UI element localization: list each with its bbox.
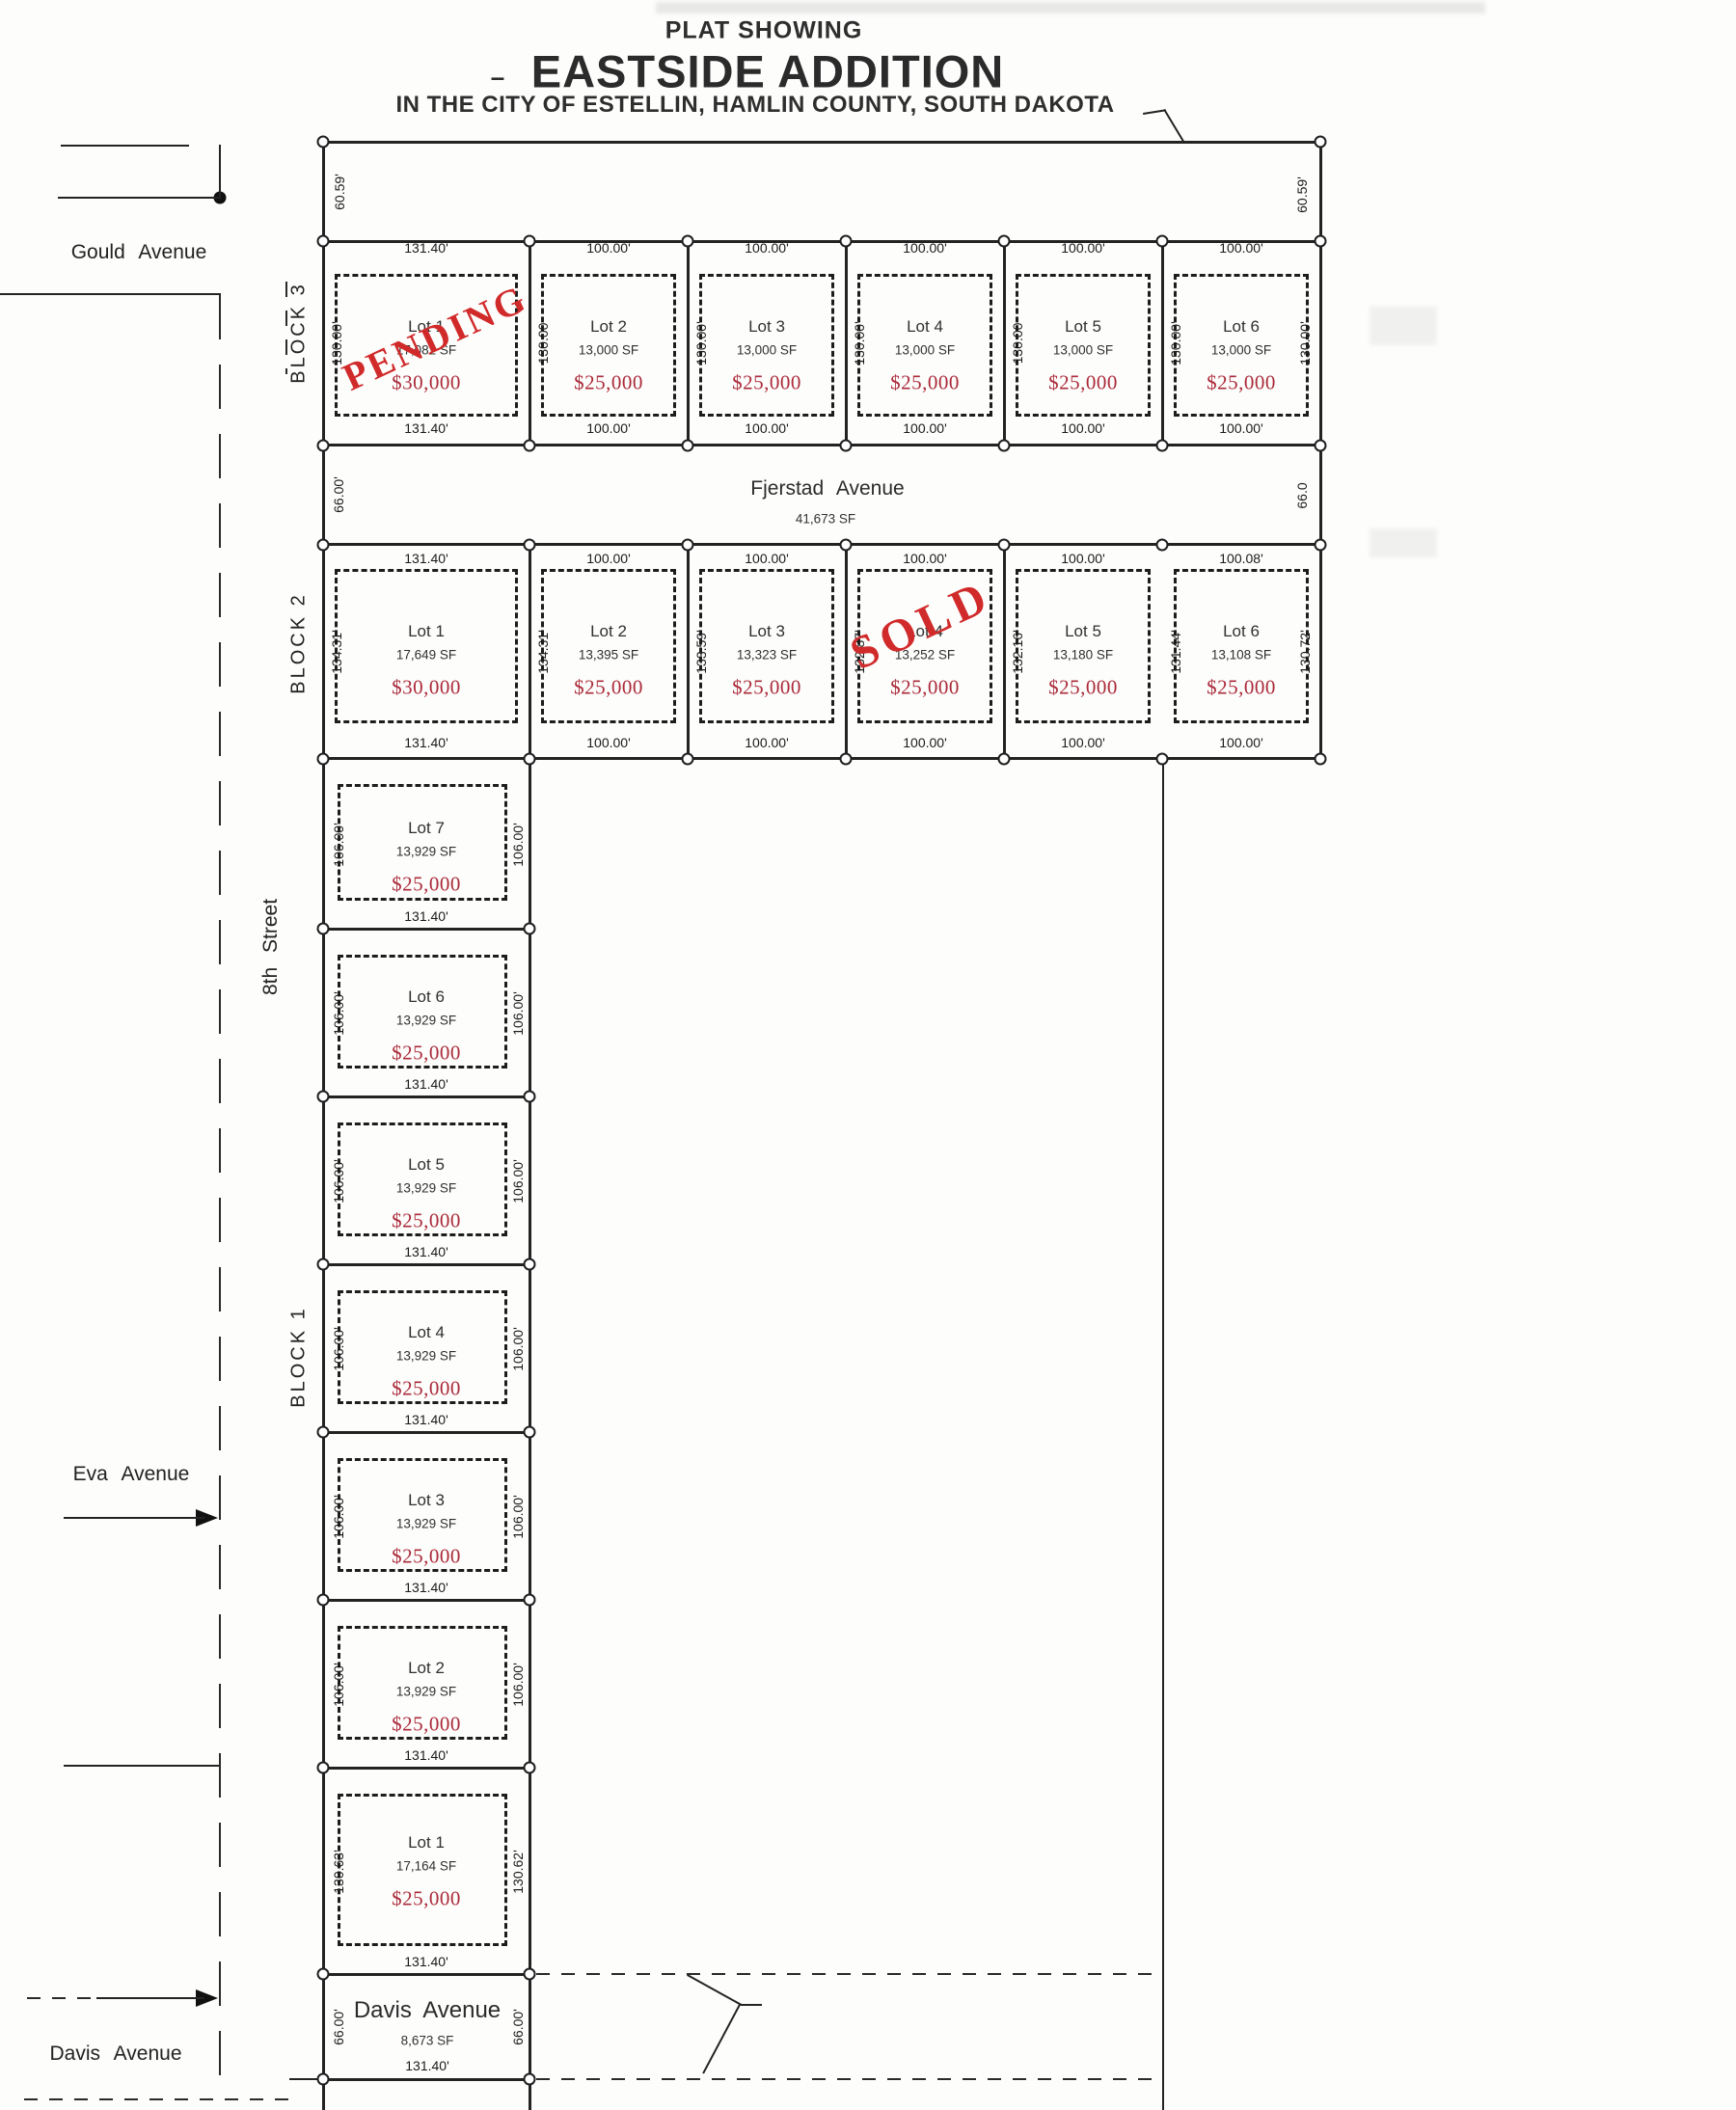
dimension-label: 106.00'	[510, 1327, 526, 1371]
dimension-label: 106.00'	[510, 1495, 526, 1539]
scan-artifact	[656, 2, 1485, 14]
dimension-label: 100.00'	[903, 735, 947, 750]
davis-avenue-block-label: Davis Avenue	[354, 1997, 501, 2024]
page-title: EASTSIDE ADDITION	[531, 45, 1005, 98]
boundary-line	[323, 1973, 532, 1976]
plat-kicker: PLAT SHOWING	[665, 17, 863, 45]
corner-node	[998, 753, 1011, 766]
corner-node	[317, 1594, 330, 1607]
boundary-line	[687, 543, 690, 760]
dimension-label: 100.00'	[1061, 240, 1105, 256]
lot-name: Lot 5	[1065, 622, 1101, 641]
dimension-label: 131.40'	[404, 1580, 448, 1595]
corner-node	[317, 539, 330, 552]
page-subtitle: IN THE CITY OF ESTELLIN, HAMLIN COUNTY, …	[395, 92, 1114, 119]
boundary-line	[323, 444, 1323, 446]
street-label-gould: Gould Avenue	[71, 241, 207, 264]
lot-area: 13,929 SF	[396, 844, 456, 858]
corner-node	[524, 753, 536, 766]
corner-node	[1156, 539, 1169, 552]
lot-price: $25,000	[1048, 676, 1118, 700]
dashed-road-line	[536, 2078, 1163, 2080]
dashed-road-line	[27, 1997, 96, 1999]
dimension-label: 130.00'	[693, 321, 709, 365]
lot-setback-line	[699, 569, 834, 723]
dimension-label: 106.00'	[331, 991, 346, 1036]
corner-node	[682, 235, 694, 248]
boundary-line	[64, 1517, 204, 1519]
dimension-label: 131.40'	[404, 551, 448, 566]
dimension-label: 131.40'	[404, 908, 448, 924]
boundary-line	[1003, 543, 1006, 760]
leader-line	[741, 2004, 762, 2006]
corner-node	[317, 2073, 330, 2086]
corner-node	[524, 1762, 536, 1774]
boundary-line	[323, 1599, 532, 1602]
corner-node	[524, 1594, 536, 1607]
corner-node	[317, 923, 330, 935]
lot-price: $30,000	[392, 676, 461, 700]
lot-setback-line	[1174, 569, 1309, 723]
lot-area: 13,929 SF	[396, 1517, 456, 1531]
corner-node	[524, 1258, 536, 1271]
fjerstad-avenue-label: Fjerstad Avenue	[750, 477, 904, 500]
scan-artifact	[1370, 307, 1437, 345]
boundary-line	[323, 2078, 532, 2081]
dimension-label: 131.40'	[404, 1954, 448, 1969]
boundary-line	[61, 145, 189, 147]
dimension-label: 106.00'	[510, 991, 526, 1036]
boundary-line	[219, 145, 221, 199]
lot-area: 13,000 SF	[579, 343, 638, 358]
corner-node	[317, 1426, 330, 1439]
block-2-label: BLOCK 2	[288, 592, 311, 693]
boundary-line	[323, 757, 1323, 760]
boundary-line	[323, 1096, 532, 1098]
lot-area: 13,929 SF	[396, 1014, 456, 1028]
dimension-label: 100.00'	[586, 735, 631, 750]
corner-node	[840, 235, 853, 248]
lot-name: Lot 5	[408, 1155, 445, 1175]
boundary-line	[845, 240, 848, 446]
dimension-label: 106.00'	[331, 1159, 346, 1204]
dimension-label: 130.00	[535, 323, 551, 365]
dimension-label: 100.00'	[1061, 735, 1105, 750]
dimension-label: 100.00'	[1219, 735, 1263, 750]
dimension-label: 131.40'	[404, 1244, 448, 1259]
dimension-label: 134.31'	[329, 630, 344, 674]
boundary-line	[845, 543, 848, 760]
lot-name: Lot 3	[748, 317, 785, 337]
corner-node	[840, 753, 853, 766]
dimension-label: 100.00'	[1219, 240, 1263, 256]
lot-area: 13,323 SF	[737, 648, 797, 663]
dimension-label: 100.00'	[903, 551, 947, 566]
davis-avenue-block-area: 8,673 SF	[401, 2034, 454, 2048]
dimension-label: 106.00'	[331, 1327, 346, 1371]
boundary-line	[64, 1765, 220, 1767]
corner-node	[998, 539, 1011, 552]
lot-name: Lot 4	[408, 1323, 445, 1342]
lot-price: $25,000	[1207, 371, 1276, 395]
dimension-label: 100.00'	[1219, 420, 1263, 436]
lot-area: 13,180 SF	[1053, 648, 1113, 663]
dimension-label: 106.00'	[510, 1663, 526, 1707]
corner-node	[524, 440, 536, 452]
boundary-line	[323, 240, 1323, 243]
lot-price: $25,000	[392, 1713, 461, 1737]
dimension-label: 100.00'	[1061, 551, 1105, 566]
lot-price: $25,000	[574, 371, 643, 395]
lot-area: 13,000 SF	[1053, 343, 1113, 358]
lot-setback-line	[335, 569, 518, 723]
street-label-eva: Eva Avenue	[73, 1463, 190, 1486]
boundary-line	[1161, 240, 1164, 446]
lot-price: $25,000	[890, 676, 960, 700]
boundary-line	[529, 240, 531, 446]
dimension-label: 130.62'	[510, 1850, 526, 1894]
dimension-label: 130.00'	[1168, 321, 1183, 365]
lot-name: Lot 6	[1223, 317, 1260, 337]
corner-node	[1156, 235, 1169, 248]
dashed-road-line	[285, 282, 287, 374]
lot-area: 13,929 SF	[396, 1685, 456, 1699]
corner-node	[840, 539, 853, 552]
dimension-label: 130.00	[1010, 323, 1025, 365]
corner-node	[524, 2073, 536, 2086]
dimension-label: 100.00'	[903, 420, 947, 436]
lot-area: 13,000 SF	[895, 343, 955, 358]
corner-node	[682, 440, 694, 452]
corner-node	[1156, 440, 1169, 452]
scan-artifact	[1370, 528, 1437, 557]
lot-name: Lot 6	[408, 987, 445, 1007]
lot-name: Lot 2	[590, 622, 627, 641]
boundary-line	[687, 240, 690, 446]
lot-price: $25,000	[392, 1209, 461, 1233]
boundary-line	[96, 1997, 204, 1999]
title-dash: –	[491, 63, 504, 93]
boundary-line	[323, 1431, 532, 1434]
dimension-label: 106.00'	[331, 1663, 346, 1707]
lot-name: Lot 2	[590, 317, 627, 337]
lot-price: $25,000	[392, 1887, 461, 1911]
leader-line	[687, 1974, 742, 2006]
dimension-label: 131.40'	[404, 420, 448, 436]
dimension-label: 132.16'	[1010, 630, 1025, 674]
dashed-road-line	[536, 1973, 1163, 1975]
lot-price: $25,000	[392, 872, 461, 896]
dimension-label: 130.63'	[331, 1850, 346, 1894]
corner-node	[524, 539, 536, 552]
corner-node	[1315, 753, 1327, 766]
corner-node	[998, 235, 1011, 248]
street-label-8th: 8th Street	[259, 899, 283, 995]
corner-node	[524, 1426, 536, 1439]
dimension-label: 131.44'	[1168, 630, 1183, 674]
block-1-label: BLOCK 1	[288, 1306, 311, 1407]
dimension-label: 100.00'	[586, 240, 631, 256]
corner-node	[317, 1258, 330, 1271]
plat-map-sheet: PLAT SHOWING – EASTSIDE ADDITION IN THE …	[0, 0, 1736, 2110]
dimension-label: 66.00'	[510, 2009, 526, 2045]
corner-node	[317, 1762, 330, 1774]
dimension-label: 100.00'	[586, 551, 631, 566]
lot-area: 13,000 SF	[737, 343, 797, 358]
boundary-line	[323, 928, 532, 931]
boundary-line	[323, 141, 1323, 144]
dimension-label: 131.40'	[404, 1412, 448, 1427]
dimension-label: 100.00'	[745, 735, 789, 750]
corner-node	[524, 1091, 536, 1103]
corner-node	[1315, 136, 1327, 149]
street-label-davis: Davis Avenue	[49, 2042, 181, 2066]
dimension-label: 66.00'	[331, 2009, 346, 2045]
corner-node	[317, 1091, 330, 1103]
corner-node	[317, 440, 330, 452]
boundary-line	[529, 543, 531, 760]
dimension-label: 131.40'	[405, 2058, 449, 2073]
corner-node	[1315, 235, 1327, 248]
boundary-line	[0, 293, 221, 295]
lot-price: $25,000	[574, 676, 643, 700]
dimension-label: 131.40'	[404, 1076, 448, 1092]
lot-name: Lot 1	[408, 622, 445, 641]
dimension-label: 100.00'	[745, 551, 789, 566]
dimension-label: 130.00'	[1297, 321, 1313, 365]
lot-name: Lot 3	[748, 622, 785, 641]
lot-setback-line	[541, 569, 676, 723]
corner-node	[682, 753, 694, 766]
boundary-line	[323, 1767, 532, 1770]
lot-price: $25,000	[392, 1545, 461, 1569]
lot-area: 13,000 SF	[1211, 343, 1271, 358]
leader-line	[702, 2004, 741, 2073]
lot-price: $25,000	[392, 1377, 461, 1401]
dimension-label: 134.31'	[535, 630, 551, 674]
dimension-label: 106.00'	[331, 1495, 346, 1539]
dashed-road-line	[24, 2098, 292, 2100]
dimension-label: 100.00'	[903, 240, 947, 256]
lot-name: Lot 7	[408, 819, 445, 838]
lot-name: Lot 5	[1065, 317, 1101, 337]
lot-setback-line	[1016, 569, 1151, 723]
dimension-label: 100.00'	[745, 420, 789, 436]
corner-node	[317, 136, 330, 149]
lot-price: $25,000	[732, 676, 801, 700]
lot-area: 17,649 SF	[396, 648, 456, 663]
lot-name: Lot 2	[408, 1659, 445, 1678]
dimension-label: 133.59'	[693, 630, 709, 674]
dimension-label: 100.08'	[1219, 551, 1263, 566]
corner-node	[1315, 440, 1327, 452]
lot-name: Lot 3	[408, 1491, 445, 1510]
lot-area: 17,164 SF	[396, 1859, 456, 1874]
dimension-label: 60.59'	[332, 174, 347, 210]
boundary-line	[323, 1263, 532, 1266]
dimension-label: 130.00'	[852, 321, 867, 365]
lot-price: $25,000	[732, 371, 801, 395]
lot-area: 13,108 SF	[1211, 648, 1271, 663]
corner-node	[317, 1968, 330, 1981]
lot-area: 13,929 SF	[396, 1349, 456, 1364]
lot-price: $25,000	[1048, 371, 1118, 395]
dashed-road-line	[219, 295, 221, 2079]
dimension-label: 100.00'	[745, 240, 789, 256]
fjerstad-avenue-area: 41,673 SF	[796, 512, 855, 527]
boundary-line	[323, 543, 1323, 546]
dimension-label: 66.0	[1294, 482, 1310, 508]
leader-line	[1163, 109, 1185, 144]
corner-node	[524, 923, 536, 935]
lot-price: $25,000	[1207, 676, 1276, 700]
dimension-label: 131.40'	[404, 1747, 448, 1763]
lot-price: $25,000	[890, 371, 960, 395]
corner-node	[682, 539, 694, 552]
dimension-label: 106.00'	[331, 823, 346, 867]
dimension-label: 106.00'	[510, 1159, 526, 1204]
lot-area: 13,395 SF	[579, 648, 638, 663]
lot-price: $25,000	[392, 1041, 461, 1066]
dimension-label: 66.00'	[331, 476, 346, 513]
corner-node	[524, 235, 536, 248]
corner-node	[524, 1968, 536, 1981]
boundary-line	[1162, 760, 1164, 2110]
dimension-label: 106.00'	[510, 823, 526, 867]
lot-name: Lot 4	[907, 317, 943, 337]
dimension-label: 100.00'	[1061, 420, 1105, 436]
lot-name: Lot 6	[1223, 622, 1260, 641]
corner-node	[840, 440, 853, 452]
block-3-label: BLOCK 3	[288, 282, 311, 383]
dimension-label: 100.00'	[586, 420, 631, 436]
boundary-line	[322, 141, 325, 2110]
corner-node	[317, 235, 330, 248]
corner-node	[317, 753, 330, 766]
dimension-label: 131.40'	[404, 735, 448, 750]
corner-node	[1315, 539, 1327, 552]
dimension-label: 60.59'	[1294, 176, 1310, 213]
corner-node	[1156, 753, 1169, 766]
lot-name: Lot 1	[408, 1833, 445, 1853]
lot-area: 13,929 SF	[396, 1181, 456, 1196]
corner-node	[998, 440, 1011, 452]
boundary-line	[1003, 240, 1006, 446]
boundary-line	[58, 197, 220, 199]
dimension-label: 131.40'	[404, 240, 448, 256]
dimension-label: 130.72'	[1297, 630, 1313, 674]
